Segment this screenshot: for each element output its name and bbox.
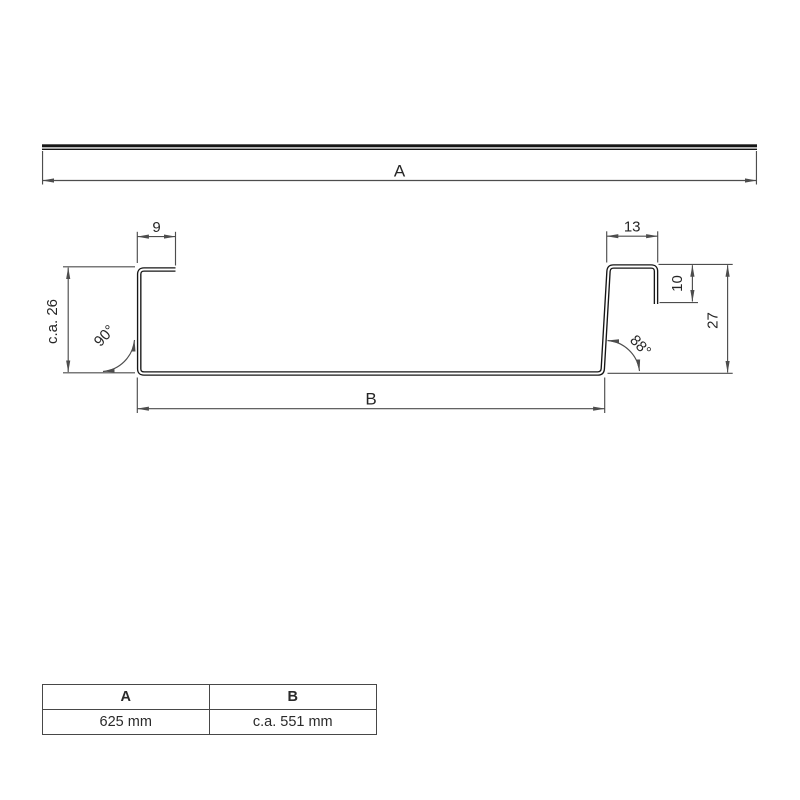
sheet-edge-lower <box>42 149 757 150</box>
table-value-b: c.a. 551 mm <box>210 710 377 735</box>
label-right-angle: 88° <box>626 332 654 360</box>
profile-drawing-svg: A B 9 13 c.a. 26 27 10 90° 88° <box>0 0 800 800</box>
table-header-a: A <box>43 685 210 710</box>
technical-drawing-page: A B 9 13 c.a. 26 27 10 90° 88° A B 625 m… <box>0 0 800 800</box>
table-header-b: B <box>210 685 377 710</box>
dim-right-flange <box>607 231 658 262</box>
label-right-height: 27 <box>705 312 722 329</box>
table-value-a: 625 mm <box>43 710 210 735</box>
sheet-edge-upper <box>42 144 757 147</box>
label-base-width: B <box>365 390 376 409</box>
label-right-flange-width: 13 <box>624 218 641 235</box>
label-left-height: c.a. 26 <box>44 299 61 344</box>
label-right-lip-height: 10 <box>669 275 686 292</box>
dimensions-table: A B 625 mm c.a. 551 mm <box>42 684 377 735</box>
profile-cross-section <box>139 267 656 374</box>
profile-top-view <box>42 144 757 150</box>
dim-left-flange <box>137 232 175 266</box>
sheet-outline-core <box>139 267 656 374</box>
label-left-angle: 90° <box>91 322 119 350</box>
label-overall-width: A <box>394 162 406 181</box>
label-left-flange-width: 9 <box>152 219 160 236</box>
sheet-outline-outer <box>139 267 656 374</box>
dim-left-height <box>63 267 135 373</box>
